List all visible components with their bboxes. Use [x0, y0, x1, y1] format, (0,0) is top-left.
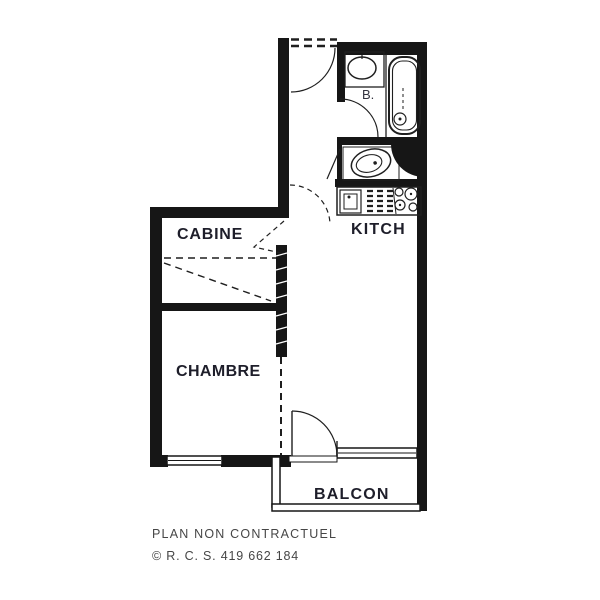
room-label-kitchen: KITCH	[351, 221, 406, 239]
toilet-drain-dot	[373, 161, 377, 165]
wall-bath-bottom	[337, 137, 421, 145]
kitchen	[337, 187, 421, 215]
room-label-bath: B.	[362, 87, 374, 102]
wall-cabine-chambre-divider	[153, 303, 285, 311]
hall-doors	[254, 185, 330, 253]
bunk-line-diagonal	[164, 263, 271, 301]
balcony-door-threshold	[289, 456, 337, 462]
wall-chambre-bottom-corner	[150, 455, 168, 467]
toilet-icon	[348, 145, 394, 181]
wall-bath-left	[337, 42, 345, 102]
footer-rcs-number: © R. C. S. 419 662 184	[152, 549, 299, 563]
kitchen-sink-icon	[340, 190, 361, 213]
bathtub-inner	[393, 61, 417, 130]
wall-cabine-top	[150, 207, 289, 218]
kitchen-sink-tap-dot	[348, 196, 351, 199]
floor-plan-page: CABINE KITCH CHAMBRE BALCON B. PLAN NON …	[0, 0, 600, 600]
entrance-door	[291, 40, 337, 93]
bunk-bed-marks	[164, 258, 276, 301]
bathroom	[340, 52, 420, 137]
balcony-bottom-wall	[272, 504, 420, 511]
balcony-door-swing-arc	[292, 411, 337, 456]
washbasin-icon	[348, 57, 376, 79]
balcony-left-wall	[272, 457, 280, 507]
wall-top	[337, 42, 427, 55]
wc-door-swing-filled	[391, 144, 424, 177]
toilet-bowl-inner	[354, 152, 384, 175]
entrance-door-swing-arc	[291, 48, 335, 92]
wall-left	[150, 207, 162, 467]
bathroom-door-swing-arc	[340, 99, 378, 137]
hall-door-swing-arc-dashed	[290, 185, 330, 225]
kitchen-sink-basin	[344, 194, 357, 209]
room-label-balcon: BALCON	[314, 486, 390, 504]
wall-right	[417, 42, 427, 511]
wall-cabine-right-hatched	[276, 245, 287, 357]
stove-burners-icon	[395, 188, 417, 211]
kitchen-drainer-grill	[367, 191, 393, 211]
chambre-partition-and-balcony-door	[281, 357, 337, 457]
bathtub-drain-dot	[399, 118, 402, 121]
footer-disclaimer: PLAN NON CONTRACTUEL	[152, 527, 337, 541]
room-label-chambre: CHAMBRE	[176, 363, 261, 381]
room-label-cabine: CABINE	[177, 226, 243, 244]
wall-hall-left	[278, 38, 289, 218]
floor-plan-drawing	[0, 0, 600, 600]
